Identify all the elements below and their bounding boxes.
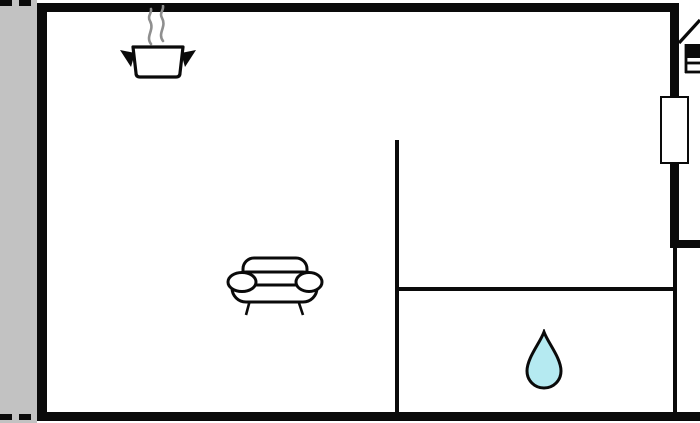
- sofa-armrest-right: [296, 273, 322, 292]
- window-symbol: [660, 96, 689, 164]
- bottom-wall: [37, 412, 700, 421]
- terrace-area: [0, 0, 37, 423]
- steam-line-left: [149, 9, 151, 44]
- bed-icon: [674, 16, 700, 76]
- bed-headboard-diagonal: [679, 20, 700, 43]
- pot-body: [133, 47, 183, 77]
- cooking-pot-icon: [118, 5, 202, 83]
- interior-wall-vertical: [395, 140, 399, 412]
- terrace-dashed-edge-bottom: [0, 414, 37, 420]
- water-drop-icon: [524, 329, 564, 394]
- right-partition-wall: [673, 248, 677, 412]
- sofa-icon: [226, 252, 324, 318]
- terrace-dashed-edge-top: [0, 0, 37, 6]
- sofa-armrest-left: [228, 273, 256, 292]
- interior-wall-horizontal: [395, 287, 676, 291]
- right-wall-mid: [670, 164, 679, 248]
- left-wall: [37, 3, 47, 420]
- steam-line-right: [161, 6, 163, 41]
- water-drop-shape: [527, 332, 561, 388]
- right-wall-stub: [670, 240, 700, 248]
- floor-plan: [0, 0, 700, 423]
